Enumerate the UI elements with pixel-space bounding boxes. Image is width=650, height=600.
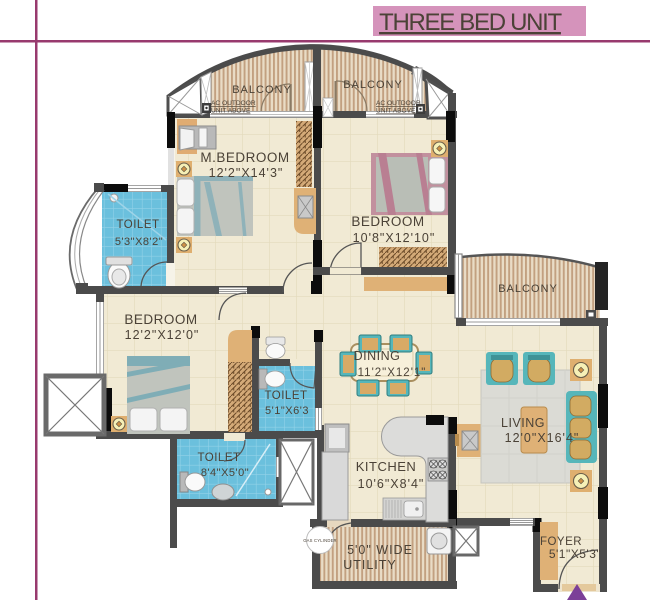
svg-text:UNIT ABOVE: UNIT ABOVE: [376, 108, 416, 115]
svg-text:UTILITY: UTILITY: [343, 558, 397, 572]
svg-text:8'4"X5'0": 8'4"X5'0": [201, 467, 249, 479]
svg-text:AC OUTDOOR: AC OUTDOOR: [211, 100, 256, 107]
svg-text:TOILET: TOILET: [116, 219, 159, 231]
svg-text:5'1"X6'3: 5'1"X6'3: [265, 405, 309, 417]
svg-text:THREE BED UNIT: THREE BED UNIT: [379, 9, 562, 36]
svg-text:DINING: DINING: [354, 349, 401, 363]
svg-text:M.BEDROOM: M.BEDROOM: [200, 150, 289, 165]
svg-text:BEDROOM: BEDROOM: [124, 312, 197, 327]
svg-text:BALCONY: BALCONY: [498, 283, 558, 295]
svg-text:5'1"X5'3": 5'1"X5'3": [549, 547, 601, 561]
svg-text:GAS CYLINDER: GAS CYLINDER: [303, 538, 337, 543]
svg-text:11'2"X12'1": 11'2"X12'1": [358, 367, 427, 379]
svg-text:BEDROOM: BEDROOM: [351, 214, 424, 229]
svg-text:12'2"X12'0": 12'2"X12'0": [125, 328, 200, 342]
svg-text:10'6"X8'4": 10'6"X8'4": [358, 477, 425, 491]
svg-text:5'3"X8'2": 5'3"X8'2": [115, 236, 163, 248]
svg-text:TOILET: TOILET: [264, 390, 307, 402]
svg-text:LIVING: LIVING: [501, 416, 545, 430]
svg-text:UNIT ABOVE: UNIT ABOVE: [211, 108, 251, 115]
svg-text:BALCONY: BALCONY: [343, 79, 403, 91]
svg-text:12'0"X16'4": 12'0"X16'4": [505, 431, 580, 445]
svg-text:BALCONY: BALCONY: [232, 84, 292, 96]
svg-text:12'2"X14'3": 12'2"X14'3": [209, 166, 284, 180]
svg-text:5'0" WIDE: 5'0" WIDE: [347, 543, 413, 557]
svg-text:AC OUTDOOR: AC OUTDOOR: [376, 100, 421, 107]
svg-text:KITCHEN: KITCHEN: [356, 459, 417, 474]
svg-text:TOILET: TOILET: [197, 452, 240, 464]
svg-text:10'8"X12'10": 10'8"X12'10": [353, 231, 436, 245]
